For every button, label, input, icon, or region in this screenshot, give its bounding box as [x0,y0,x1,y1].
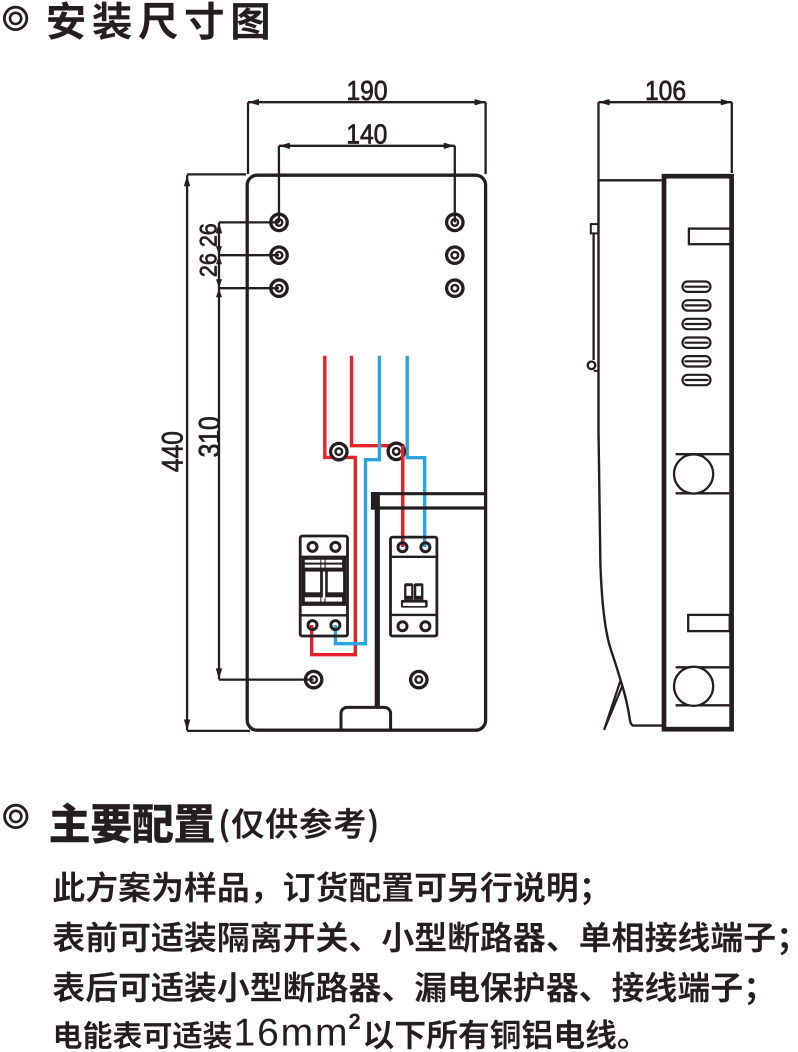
svg-text:310: 310 [192,416,226,457]
svg-text:190: 190 [346,75,387,107]
svg-text:140: 140 [346,118,387,150]
svg-text:26: 26 [194,223,222,247]
svg-text:440: 440 [155,431,189,472]
svg-text:2: 2 [349,1009,361,1034]
svg-text:16mm: 16mm [234,1012,348,1052]
svg-text:26: 26 [194,253,222,277]
svg-text:106: 106 [645,75,686,107]
